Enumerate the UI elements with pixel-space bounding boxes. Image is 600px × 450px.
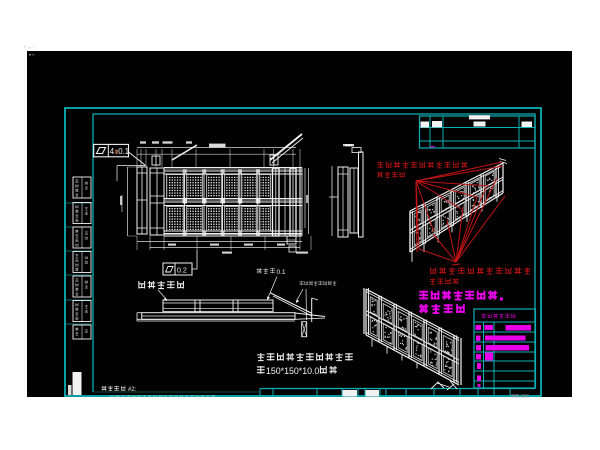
svg-text:0.1: 0.1 bbox=[277, 269, 286, 276]
svg-text:150*150*10.0: 150*150*10.0 bbox=[266, 366, 319, 376]
svg-text:0.1: 0.1 bbox=[118, 147, 129, 156]
svg-text:#2:: #2: bbox=[128, 387, 137, 393]
svg-text:4: 4 bbox=[110, 147, 115, 156]
svg-text:0.2: 0.2 bbox=[177, 268, 187, 275]
